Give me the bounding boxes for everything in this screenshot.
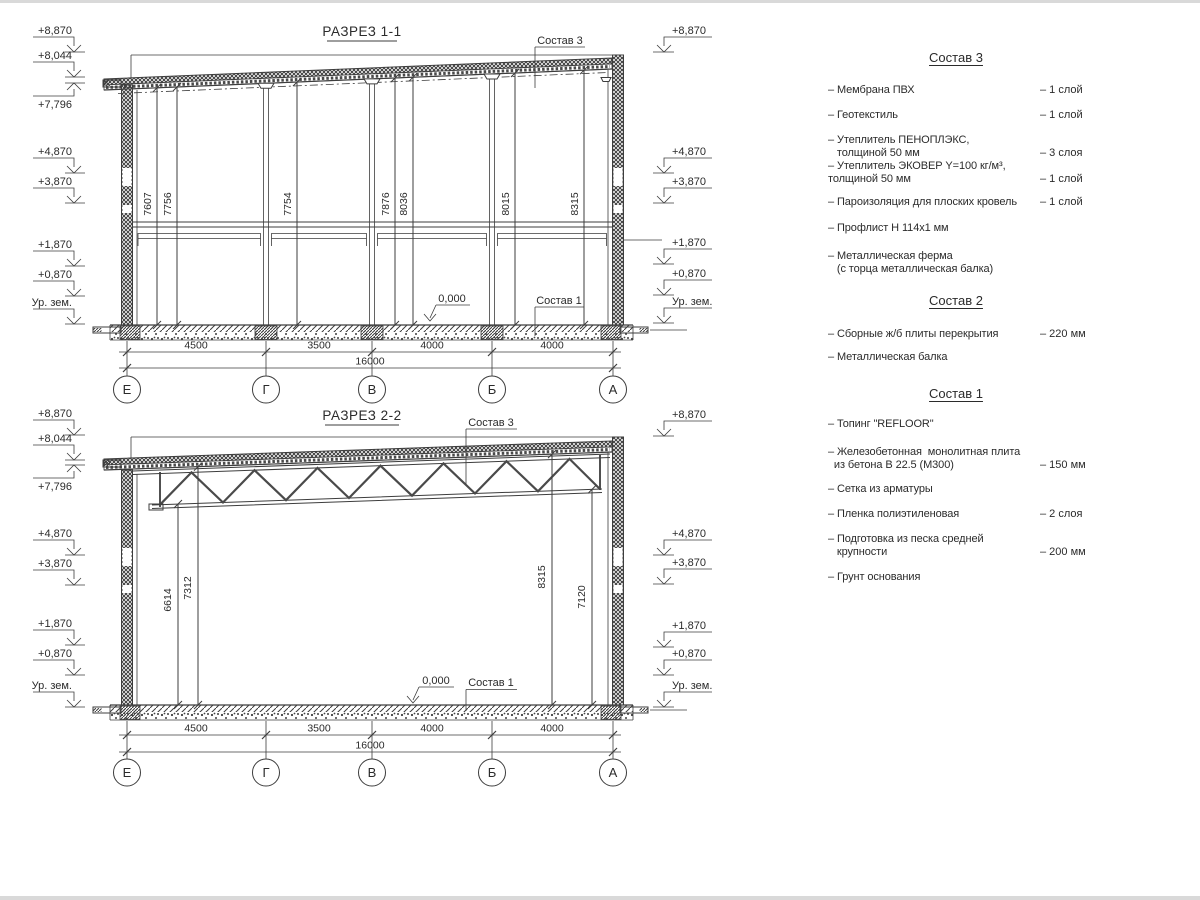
elevation-mark: +4,870 xyxy=(33,528,85,555)
svg-text:Ур. зем.: Ур. зем. xyxy=(672,296,712,308)
legend-item: – Сетка из арматуры xyxy=(828,483,1043,496)
materials-legend: Состав 3 – Мембрана ПВХ – 1 слой – Геоте… xyxy=(810,0,1200,660)
svg-text:+3,870: +3,870 xyxy=(672,557,706,569)
elevation-mark: +3,870 xyxy=(33,558,85,585)
legend-item: – Утеплитель ПЕНОПЛЭКС, толщиной 50 мм xyxy=(828,134,1043,160)
right-wall xyxy=(608,437,624,705)
vdim-label: 6614 xyxy=(162,588,174,612)
svg-text:+1,870: +1,870 xyxy=(38,239,72,251)
legend-value: – 220 мм xyxy=(1040,328,1160,341)
elevation-mark: +8,870 xyxy=(33,25,85,52)
grid-letter: Е xyxy=(123,765,132,780)
elevation-mark: +1,870 xyxy=(33,239,85,266)
grid-letter: А xyxy=(609,382,618,397)
column-cap xyxy=(484,74,500,79)
left-wall xyxy=(122,470,138,705)
svg-text:+7,796: +7,796 xyxy=(38,481,72,493)
total-dim: 16000 xyxy=(355,740,384,752)
grid-letter: Б xyxy=(488,765,497,780)
legend-item: – Топинг "REFLOOR" xyxy=(828,418,1043,431)
foundation-pad xyxy=(255,326,277,340)
grid-letter: В xyxy=(368,382,377,397)
elevation-mark: +0,870 xyxy=(33,648,85,675)
elevation-mark: +8,870 xyxy=(653,25,712,52)
legend-value: – 1 слой xyxy=(1040,84,1160,97)
elevation-marks-right: +8,870 +4,870 +3,870 +1,870 +0,870 Ур. з… xyxy=(653,409,712,707)
elevation-mark: +4,870 xyxy=(653,146,712,173)
legend-value: – 1 слой xyxy=(1040,109,1160,122)
elevation-mark: +3,870 xyxy=(33,176,85,203)
elevation-mark: +3,870 xyxy=(653,557,712,584)
legend-value: – 3 слоя xyxy=(1040,147,1160,160)
svg-text:+7,796: +7,796 xyxy=(38,99,72,111)
svg-text:Ур. зем.: Ур. зем. xyxy=(32,680,72,692)
foundation-pad xyxy=(601,326,621,340)
legend-item: – Пароизоляция для плоских кровель xyxy=(828,196,1043,209)
column xyxy=(490,79,495,325)
grid-letter: Е xyxy=(123,382,132,397)
legend-value: – 1 слой xyxy=(1040,173,1160,186)
svg-text:Ур. зем.: Ур. зем. xyxy=(672,680,712,692)
column xyxy=(370,84,375,325)
span-dim: 4000 xyxy=(540,723,564,735)
legend-value: – 150 мм xyxy=(1040,459,1160,472)
grid-letter: В xyxy=(368,765,377,780)
floor-slab xyxy=(93,705,687,720)
leaders: Состав 3 0,000 Состав 1 xyxy=(424,35,662,336)
sections-drawing: РАЗРЕЗ 1-1 xyxy=(0,0,770,830)
elevation-mark: +8,870 xyxy=(33,408,85,435)
drawing-sheet: РАЗРЕЗ 1-1 xyxy=(0,0,1200,900)
elevation-mark: +4,870 xyxy=(653,528,712,555)
legend-item: – Геотекстиль xyxy=(828,109,1043,122)
legend-heading-sostav3: Состав 3 xyxy=(900,50,1012,65)
grid-bubbles: Е Г В Б А xyxy=(114,376,627,403)
sostav3-label: Состав 3 xyxy=(468,417,514,429)
section-1-1: РАЗРЕЗ 1-1 xyxy=(32,24,713,403)
foundation-pad xyxy=(120,326,140,340)
legend-heading-sostav2: Состав 2 xyxy=(900,293,1012,308)
elevation-mark: +7,796 xyxy=(33,465,85,493)
section-2-2: РАЗРЕЗ 2-2 xyxy=(32,408,713,786)
legend-item: – Подготовка из песка средней крупности xyxy=(828,533,1043,559)
svg-text:+1,870: +1,870 xyxy=(672,237,706,249)
svg-text:+8,870: +8,870 xyxy=(38,25,72,37)
elevation-mark: +4,870 xyxy=(33,146,85,173)
legend-value: – 2 слоя xyxy=(1040,508,1160,521)
legend-item: – Мембрана ПВХ xyxy=(828,84,1043,97)
foundation-pad xyxy=(601,706,621,720)
elevation-mark: +8,870 xyxy=(653,409,712,436)
zero-level-label: 0,000 xyxy=(438,293,466,305)
svg-text:+8,870: +8,870 xyxy=(38,408,72,420)
svg-text:+4,870: +4,870 xyxy=(38,528,72,540)
span-dim: 4500 xyxy=(184,340,208,352)
vdim-label: 8015 xyxy=(500,192,512,216)
svg-text:+0,870: +0,870 xyxy=(672,648,706,660)
foundation-pad xyxy=(120,706,140,720)
vdim-label: 8036 xyxy=(398,192,410,216)
span-dim: 4500 xyxy=(184,723,208,735)
elevation-mark: +0,870 xyxy=(653,268,712,295)
vdim-label: 7754 xyxy=(282,192,294,216)
column-cap xyxy=(258,83,274,88)
elevation-mark: Ур. зем. xyxy=(32,297,85,324)
elevation-mark: +8,044 xyxy=(33,50,85,77)
svg-text:+4,870: +4,870 xyxy=(672,528,706,540)
column-cap xyxy=(364,79,380,84)
vdim-label: 7312 xyxy=(182,576,194,600)
vdim-label: 7876 xyxy=(380,192,392,216)
dimension-rows: 4500 3500 4000 4000 16000 xyxy=(119,721,621,759)
legend-item: – Металлическая балка xyxy=(828,351,1043,364)
grid-letter: Б xyxy=(488,382,497,397)
dimension-rows: 4500 3500 4000 4000 16000 xyxy=(119,340,621,376)
legend-item: – Железобетонная монолитная плита из бет… xyxy=(828,446,1043,472)
elevation-mark: +7,796 xyxy=(33,83,85,111)
elevation-mark: +1,870 xyxy=(653,620,712,647)
right-wall xyxy=(608,55,624,325)
svg-text:+8,044: +8,044 xyxy=(38,50,72,62)
roof xyxy=(103,58,612,94)
section-title: РАЗРЕЗ 1-1 xyxy=(322,24,401,39)
legend-item: – Сборные ж/б плиты перекрытия xyxy=(828,328,1043,341)
foundation-pad xyxy=(361,326,383,340)
span-dim: 4000 xyxy=(420,340,444,352)
left-wall xyxy=(122,85,138,325)
mezzanine-slab xyxy=(133,222,612,246)
grid-letter: Г xyxy=(262,382,269,397)
legend-item: – Грунт основания xyxy=(828,571,1043,584)
columns xyxy=(258,74,611,325)
wall-column-cap xyxy=(601,78,611,82)
legend-value: – 1 слой xyxy=(1040,196,1160,209)
vdim-label: 8315 xyxy=(569,192,581,216)
floor-slab xyxy=(93,325,687,340)
elevation-mark: +0,870 xyxy=(653,648,712,675)
sostav1-label: Состав 1 xyxy=(536,295,582,307)
span-dim: 4000 xyxy=(540,340,564,352)
legend-item: – Утеплитель ЭКОВЕР Y=100 кг/м³, толщино… xyxy=(828,160,1043,186)
svg-text:+3,870: +3,870 xyxy=(38,176,72,188)
foundation-pad xyxy=(481,326,503,340)
total-dim: 16000 xyxy=(355,356,384,368)
legend-item: – Пленка полиэтиленовая xyxy=(828,508,1043,521)
elevation-mark: +8,044 xyxy=(33,433,85,460)
vdim-label: 7756 xyxy=(162,192,174,216)
zero-level-label: 0,000 xyxy=(422,675,450,687)
legend-item: – Профлист Н 114х1 мм xyxy=(828,222,1043,235)
svg-text:+0,870: +0,870 xyxy=(38,648,72,660)
svg-text:+8,044: +8,044 xyxy=(38,433,72,445)
grid-letter: Г xyxy=(262,765,269,780)
vdim-label: 7120 xyxy=(576,585,588,609)
legend-value: – 200 мм xyxy=(1040,546,1160,559)
svg-text:+1,870: +1,870 xyxy=(38,618,72,630)
column xyxy=(264,88,269,325)
sostav3-label: Состав 3 xyxy=(537,35,583,47)
svg-text:+0,870: +0,870 xyxy=(672,268,706,280)
elevation-mark: +1,870 xyxy=(33,618,85,645)
svg-text:+4,870: +4,870 xyxy=(38,146,72,158)
roof-edge-detail xyxy=(103,81,110,86)
sostav1-label: Состав 1 xyxy=(468,677,514,689)
elevation-mark: Ур. зем. xyxy=(653,296,712,323)
elevation-marks-left: +8,870 +8,044 +7,796 +4,870 +3,870 +1,87… xyxy=(32,25,85,324)
span-dim: 3500 xyxy=(307,723,331,735)
grid-bubbles: Е Г В Б А xyxy=(114,759,627,786)
svg-text:+3,870: +3,870 xyxy=(672,176,706,188)
elevation-mark: Ур. зем. xyxy=(653,680,712,707)
svg-text:+0,870: +0,870 xyxy=(38,269,72,281)
svg-text:+4,870: +4,870 xyxy=(672,146,706,158)
span-dim: 4000 xyxy=(420,723,444,735)
span-dim: 3500 xyxy=(307,340,331,352)
svg-text:+8,870: +8,870 xyxy=(672,409,706,421)
elevation-mark: Ур. зем. xyxy=(32,680,85,707)
vdim-label: 8315 xyxy=(536,565,548,589)
svg-text:+1,870: +1,870 xyxy=(672,620,706,632)
section-title: РАЗРЕЗ 2-2 xyxy=(322,408,401,423)
vdim-label: 7607 xyxy=(142,192,154,216)
svg-text:+8,870: +8,870 xyxy=(672,25,706,37)
legend-heading-sostav1: Состав 1 xyxy=(900,386,1012,401)
svg-text:Ур. зем.: Ур. зем. xyxy=(32,297,72,309)
grid-letter: А xyxy=(609,765,618,780)
elevation-marks-right: +8,870 +4,870 +3,870 +1,870 +0,870 Ур. з… xyxy=(653,25,712,323)
elevation-mark: +1,870 xyxy=(653,237,712,264)
sheet-edge-bottom xyxy=(0,896,1200,900)
elevation-marks-left: +8,870 +8,044 +7,796 +4,870 +3,870 +1,87… xyxy=(32,408,85,707)
svg-text:+3,870: +3,870 xyxy=(38,558,72,570)
elevation-mark: +3,870 xyxy=(653,176,712,203)
vertical-dimensions xyxy=(153,66,588,329)
legend-item: – Металлическая ферма (с торца металличе… xyxy=(828,250,1043,276)
roof xyxy=(103,441,612,470)
elevation-mark: +0,870 xyxy=(33,269,85,296)
